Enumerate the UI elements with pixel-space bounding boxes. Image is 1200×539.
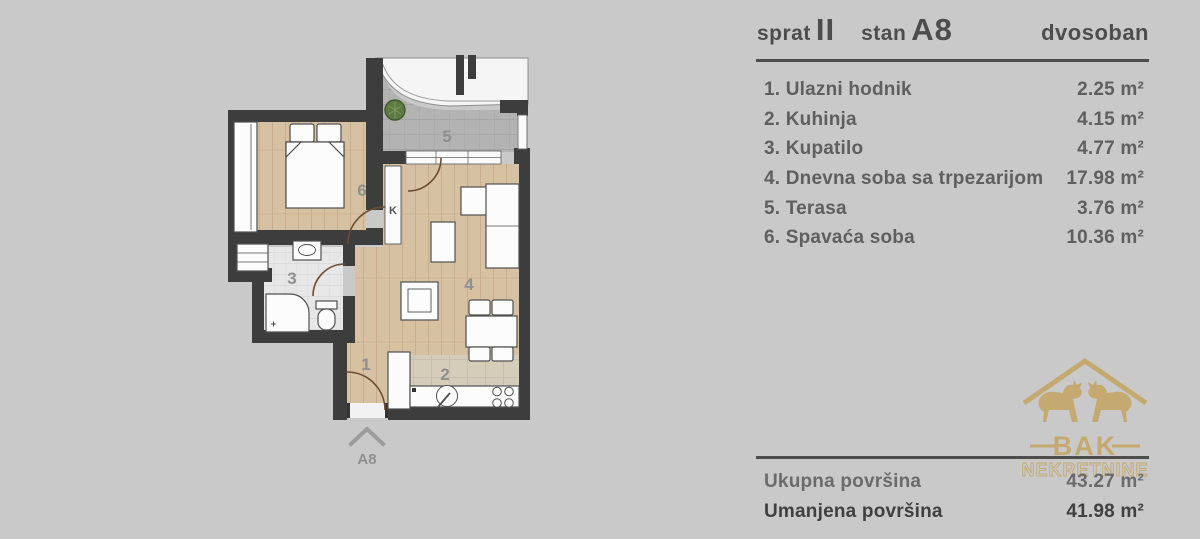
wall xyxy=(514,148,530,164)
total-net-row: Umanjena površina 41.98 m² xyxy=(764,501,1144,523)
room-row: 4. Dnevna soba sa trpezarijom 17.98 m² xyxy=(764,164,1144,194)
armchair-seat xyxy=(408,289,431,312)
wall xyxy=(456,55,464,95)
sink-basin xyxy=(299,245,316,256)
pillow xyxy=(290,124,314,142)
wall xyxy=(517,100,528,116)
room-name: 4. Dnevna soba sa trpezarijom xyxy=(764,168,1043,190)
fridge-cabinet xyxy=(388,352,410,409)
stove-burner xyxy=(493,399,502,408)
apartment-type: dvosoban xyxy=(1041,20,1149,46)
room-name: 6. Spavaća soba xyxy=(764,227,915,249)
dining-table xyxy=(466,316,517,347)
room-list: 1. Ulazni hodnik 2.25 m² 2. Kuhinja 4.15… xyxy=(764,75,1144,253)
wall xyxy=(468,55,476,79)
room-name: 1. Ulazni hodnik xyxy=(764,79,912,101)
stove-burner xyxy=(493,387,502,396)
entrance-unit-label: A8 xyxy=(357,451,376,468)
bull-icon xyxy=(1088,380,1133,422)
closet-niche xyxy=(237,244,268,271)
entrance-chevron-icon xyxy=(351,429,383,444)
bed xyxy=(286,142,344,208)
header: sprat II stan A8 dvosoban xyxy=(757,12,1149,48)
brand-logo: BAK NEKRETNINE xyxy=(1022,352,1160,484)
wall xyxy=(366,58,383,112)
wardrobe xyxy=(234,122,257,232)
door-sill xyxy=(347,403,350,418)
room-area: 4.15 m² xyxy=(1077,109,1144,131)
room-area: 4.77 m² xyxy=(1077,138,1144,160)
wall xyxy=(366,228,383,245)
wall xyxy=(228,110,373,122)
dining-chair xyxy=(469,347,490,361)
label-living: 4 xyxy=(464,275,474,294)
room-name: 3. Kupatilo xyxy=(764,138,863,160)
pillow xyxy=(317,124,341,142)
floorplan-flyer: 1 2 3 4 5 6 K A8 sprat II stan A8 dvosob… xyxy=(0,0,1200,539)
wall xyxy=(376,151,407,164)
shower xyxy=(266,294,309,332)
dining-chair xyxy=(492,347,513,361)
plant-icon xyxy=(385,100,405,120)
unit-value: A8 xyxy=(911,12,953,48)
stove-burner xyxy=(505,387,514,396)
stove-burner xyxy=(505,399,514,408)
room-name: 2. Kuhinja xyxy=(764,109,857,131)
label-bedroom: 6 xyxy=(357,181,366,200)
room-area: 10.36 m² xyxy=(1066,227,1144,249)
total-net-label: Umanjena površina xyxy=(764,501,943,523)
dining-chair xyxy=(492,300,513,315)
total-gross-value: 43.27 m² xyxy=(1066,471,1144,493)
total-net-value: 41.98 m² xyxy=(1066,501,1144,523)
label-kitchen: 2 xyxy=(440,365,449,384)
wall xyxy=(343,236,355,266)
total-gross-row: Ukupna površina 43.27 m² xyxy=(764,471,1144,493)
floor-value: II xyxy=(816,12,835,48)
counter-mark xyxy=(412,388,416,392)
toilet-bowl xyxy=(318,309,335,330)
kitchen-counter xyxy=(410,386,519,407)
total-gross-label: Ukupna površina xyxy=(764,471,921,493)
room-name: 5. Terasa xyxy=(764,198,847,220)
room-row: 5. Terasa 3.76 m² xyxy=(764,194,1144,224)
wall xyxy=(519,156,530,420)
room-area: 3.76 m² xyxy=(1077,198,1144,220)
label-shaft: K xyxy=(389,205,397,217)
entrance-door-gap xyxy=(347,403,388,418)
terrace-side-railing xyxy=(518,115,527,149)
header-divider xyxy=(756,59,1149,62)
label-hall: 1 xyxy=(361,355,370,374)
room-row: 1. Ulazni hodnik 2.25 m² xyxy=(764,75,1144,105)
room-row: 2. Kuhinja 4.15 m² xyxy=(764,105,1144,135)
label-terrace: 5 xyxy=(442,127,451,146)
bull-icon xyxy=(1037,380,1082,422)
dining-chair xyxy=(469,300,490,315)
label-bathroom: 3 xyxy=(287,269,296,288)
totals-divider xyxy=(756,456,1149,459)
unit-label: stan xyxy=(861,22,906,46)
wall xyxy=(343,296,355,343)
toilet-tank xyxy=(316,301,337,309)
floor-plan: 1 2 3 4 5 6 K A8 xyxy=(0,0,740,539)
coffee-table xyxy=(431,222,455,262)
room-area: 2.25 m² xyxy=(1077,79,1144,101)
room-area: 17.98 m² xyxy=(1066,168,1144,190)
room-row: 3. Kupatilo 4.77 m² xyxy=(764,134,1144,164)
entrance-marker: A8 xyxy=(351,429,383,468)
wall xyxy=(333,341,347,420)
floor-label: sprat xyxy=(757,22,811,46)
room-row: 6. Spavaća soba 10.36 m² xyxy=(764,223,1144,253)
